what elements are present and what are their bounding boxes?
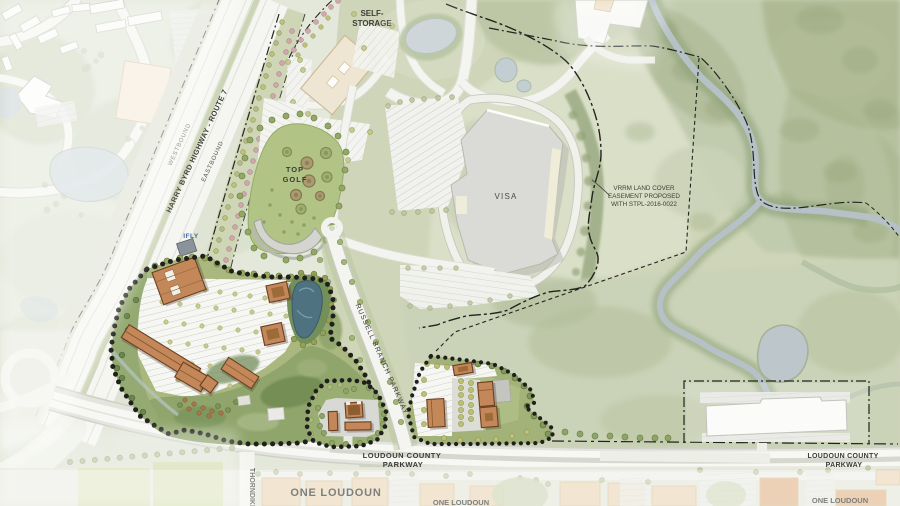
svg-text:TOP: TOP: [286, 165, 304, 174]
svg-text:EASEMENT PROPOSED: EASEMENT PROPOSED: [608, 193, 680, 200]
svg-text:LOUDOUN COUNTY: LOUDOUN COUNTY: [363, 451, 442, 460]
svg-text:GOLF: GOLF: [283, 175, 308, 184]
svg-text:IFLY: IFLY: [183, 233, 199, 240]
svg-text:LOUDOUN COUNTY: LOUDOUN COUNTY: [807, 453, 878, 460]
svg-text:VRRM LAND COVER: VRRM LAND COVER: [613, 185, 675, 192]
svg-text:PARKWAY: PARKWAY: [383, 460, 424, 469]
svg-text:VISA: VISA: [494, 192, 517, 201]
svg-text:WITH STPL-2016-0022: WITH STPL-2016-0022: [611, 201, 677, 208]
svg-text:SELF-: SELF-: [360, 9, 383, 18]
svg-text:PARKWAY: PARKWAY: [826, 462, 863, 469]
